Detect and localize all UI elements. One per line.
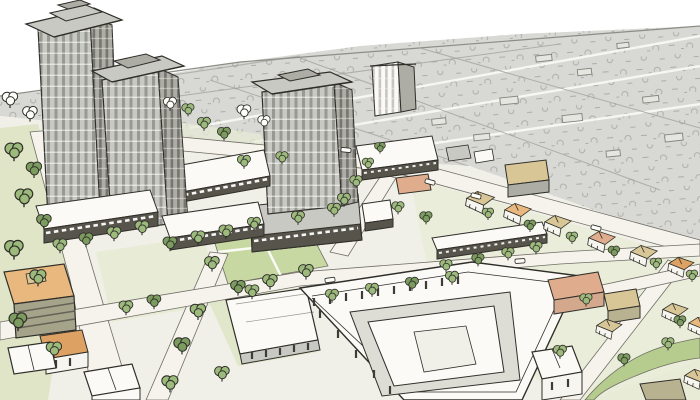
pink-pavilion xyxy=(396,174,431,194)
architectural-rendering: Aerial concept sketch of a mixed-use urb… xyxy=(0,0,700,400)
rendering-canvas: Aerial concept sketch of a mixed-use urb… xyxy=(0,0,700,400)
pink-apartment xyxy=(548,272,604,314)
tan-apartment xyxy=(604,289,640,323)
annex-building xyxy=(226,288,320,364)
plaza-pavilion xyxy=(362,200,393,231)
tower-small-right xyxy=(370,62,416,116)
car xyxy=(325,277,336,283)
car xyxy=(515,258,525,263)
flat-roof-building xyxy=(505,160,549,197)
car xyxy=(341,147,351,152)
